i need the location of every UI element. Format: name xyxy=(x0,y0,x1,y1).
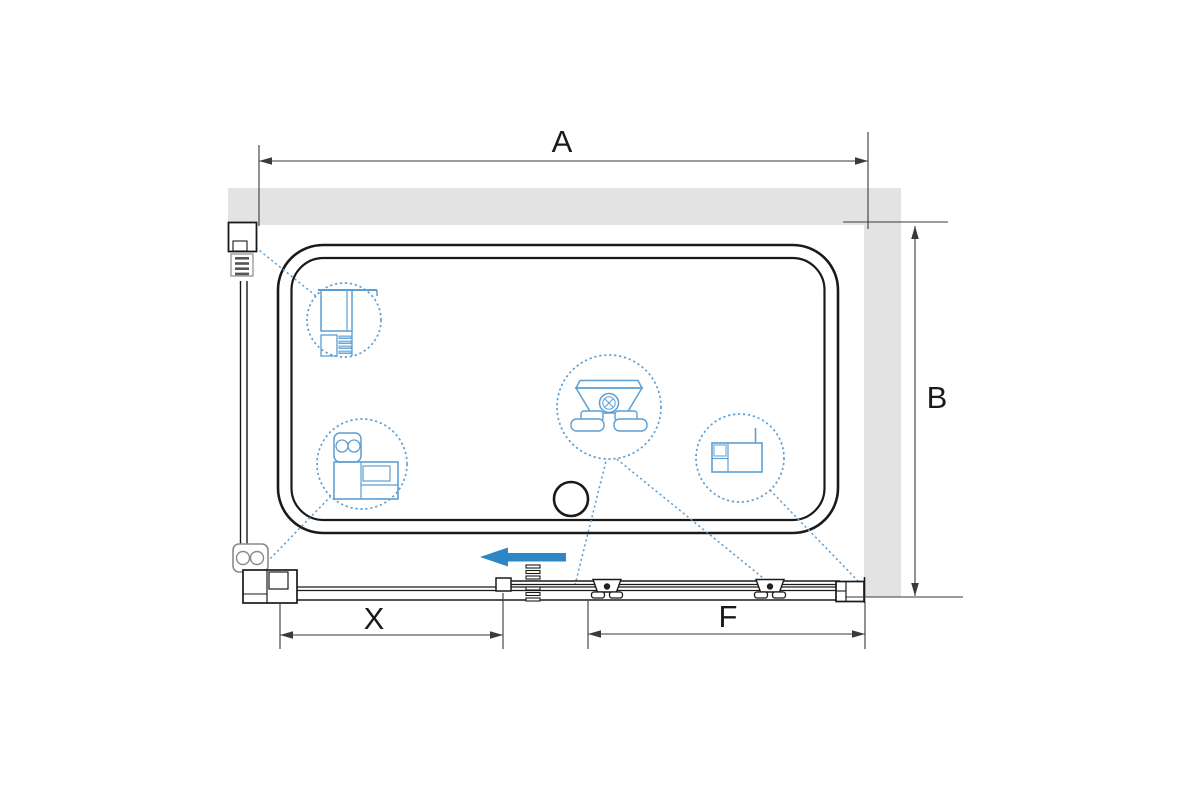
dim-f-label: F xyxy=(719,599,738,634)
drain-icon xyxy=(554,482,588,516)
callout-corner-profile xyxy=(317,419,407,509)
seal-bar xyxy=(339,351,351,354)
roller-hub xyxy=(767,583,773,589)
dim-b-label: B xyxy=(927,380,948,415)
side-panel xyxy=(229,223,298,604)
seal-bar xyxy=(526,598,540,601)
roller-foot xyxy=(773,592,786,598)
corner-assembly-bottom-left xyxy=(233,544,297,603)
seal-bar xyxy=(526,593,540,596)
seal-bar xyxy=(526,565,540,568)
seal-bar xyxy=(526,571,540,574)
callout-circle xyxy=(696,414,784,502)
corner-roller-wheel xyxy=(237,552,250,565)
dim-b-arrow-bottom xyxy=(911,583,919,596)
shower-enclosure-diagram: A B X F xyxy=(0,0,1200,800)
top-wall xyxy=(228,188,901,225)
dim-f-arrow-right xyxy=(852,630,865,638)
seal-bar xyxy=(526,587,540,590)
door-end-cap xyxy=(496,578,511,591)
brush-seal xyxy=(526,565,540,601)
dim-x-arrow-right xyxy=(490,631,503,639)
roller-foot xyxy=(592,592,605,598)
roller-carriage-right xyxy=(755,580,786,599)
dim-a-label: A xyxy=(552,124,573,159)
dim-b-arrow-top xyxy=(911,226,919,239)
dim-x-label: X xyxy=(364,601,385,636)
seal-bar xyxy=(235,267,249,270)
leader-wall-mount xyxy=(770,490,858,581)
dimension-x: X xyxy=(280,593,503,649)
dim-a-arrow-right xyxy=(855,157,868,165)
seal-bar xyxy=(235,257,249,260)
diagram-canvas: A B X F xyxy=(0,0,1200,800)
seal-bar xyxy=(339,341,351,344)
wall-profile-top-left xyxy=(229,223,257,277)
corner-roller-wheel xyxy=(251,552,264,565)
roller-foot xyxy=(610,592,623,598)
callout-roller-carriage xyxy=(557,355,661,459)
dim-x-arrow-left xyxy=(280,631,293,639)
callout-wall-mount xyxy=(696,414,784,502)
leader-corner-profile xyxy=(268,496,331,561)
wall-profile-bottom-right xyxy=(836,577,865,603)
slide-direction-arrow-icon xyxy=(480,548,566,567)
roller-hub xyxy=(604,583,610,589)
seal-bar xyxy=(339,346,351,349)
carriage-pad xyxy=(614,419,647,431)
roller-foot xyxy=(755,592,768,598)
door-rail xyxy=(297,565,865,603)
seal-bar xyxy=(235,273,249,276)
seal-bar xyxy=(235,262,249,265)
callout-wall-profile xyxy=(307,283,381,357)
callout-circle xyxy=(317,419,407,509)
dim-f-arrow-left xyxy=(588,630,601,638)
dim-a-arrow-left xyxy=(259,157,272,165)
corner-profile-body xyxy=(243,570,297,603)
dimension-b: B xyxy=(843,222,963,597)
roller-carriage-left xyxy=(592,580,623,599)
seal-bar xyxy=(526,576,540,579)
dimension-f: F xyxy=(588,599,865,649)
seal-bar xyxy=(339,336,351,339)
right-wall xyxy=(864,188,901,597)
carriage-pad xyxy=(571,419,604,431)
